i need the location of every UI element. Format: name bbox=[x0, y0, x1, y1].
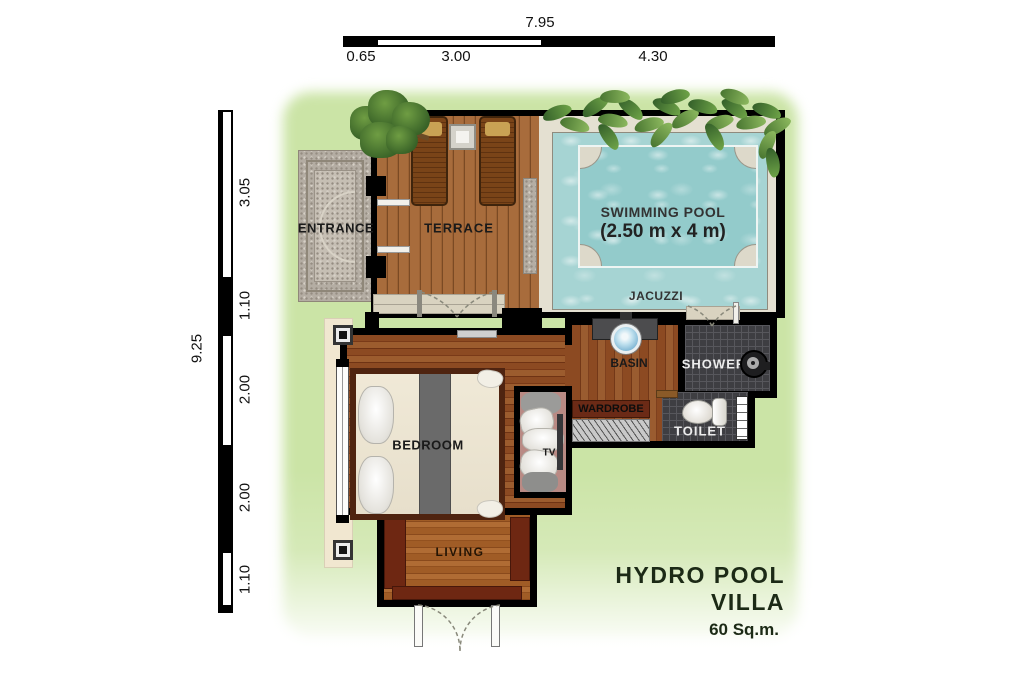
wardrobe-rail-hatch bbox=[572, 419, 650, 442]
wall-stub bbox=[365, 312, 379, 334]
daybed-cushion bbox=[522, 472, 558, 492]
sofa bbox=[510, 517, 530, 581]
patio-post-core bbox=[339, 331, 347, 339]
bedroom-label: BEDROOM bbox=[392, 438, 463, 453]
plan-title: HYDRO POOL VILLA bbox=[555, 562, 785, 616]
dim-top-seg-2: 3.00 bbox=[416, 48, 496, 65]
wardrobe-label: WARDROBE bbox=[578, 403, 643, 415]
scale-segment-black bbox=[223, 605, 231, 611]
shower-head-ring bbox=[747, 357, 759, 369]
faucet-icon bbox=[620, 312, 632, 320]
scale-segment-black bbox=[223, 277, 231, 336]
plan-title-block: HYDRO POOL VILLA 60 Sq.m. bbox=[555, 562, 785, 640]
water-feature-wall bbox=[523, 178, 537, 274]
terrace-label: TERRACE bbox=[424, 221, 494, 236]
shower-label: SHOWER bbox=[682, 357, 747, 372]
scale-segment-black bbox=[345, 40, 378, 45]
plan-area: 60 Sq.m. bbox=[555, 620, 785, 640]
living-label: LIVING bbox=[435, 545, 484, 559]
door-leaf bbox=[377, 246, 410, 253]
sliding-door bbox=[457, 330, 497, 338]
lounger-headrest bbox=[485, 122, 510, 136]
dim-left-seg-4: 2.00 bbox=[237, 458, 254, 538]
jacuzzi-label: JACUZZI bbox=[629, 289, 683, 303]
entrance-label: ENTRANCE bbox=[298, 221, 374, 236]
toilet-bowl-icon bbox=[682, 400, 714, 424]
foliage-row bbox=[540, 88, 780, 168]
dim-left-seg-5: 1.10 bbox=[237, 540, 254, 620]
terrace-door-swing-arcs bbox=[415, 290, 499, 320]
dim-top-seg-3: 4.30 bbox=[613, 48, 693, 65]
window-mullion bbox=[342, 361, 343, 521]
scale-segment-black bbox=[541, 40, 773, 45]
patio-post bbox=[333, 325, 353, 345]
wall-stub bbox=[502, 308, 542, 334]
tv-label: TV bbox=[543, 448, 556, 459]
pool-door-swing-arcs bbox=[684, 304, 740, 330]
sun-lounger bbox=[479, 116, 516, 206]
pillow bbox=[358, 456, 394, 514]
toilet-label: TOILET bbox=[674, 424, 726, 439]
left-scale-bar bbox=[218, 110, 233, 613]
tree bbox=[350, 90, 445, 175]
patio-post-core bbox=[339, 546, 347, 554]
entry-door-swing-arcs bbox=[410, 603, 508, 655]
dim-top-seg-1: 0.65 bbox=[321, 48, 401, 65]
basin-label: BASIN bbox=[610, 356, 647, 370]
toilet-tank-icon bbox=[712, 398, 727, 426]
bedroom-window bbox=[336, 360, 349, 522]
window-end bbox=[336, 359, 349, 367]
shower-head-notch bbox=[761, 362, 770, 370]
bedroom-hall-opening bbox=[565, 345, 572, 387]
top-scale-bar bbox=[343, 36, 775, 47]
dim-top-total: 7.95 bbox=[500, 14, 580, 31]
window-end bbox=[336, 515, 349, 523]
patio-post-ring bbox=[336, 543, 350, 557]
basin-icon bbox=[611, 324, 641, 354]
dim-left-total: 9.25 bbox=[189, 309, 206, 389]
floor-plan-canvas: 7.95 0.65 3.00 4.30 9.25 3.05 1.10 2.00 … bbox=[0, 0, 1024, 683]
sofa bbox=[384, 517, 406, 589]
pillow bbox=[358, 386, 394, 444]
pool-size-label: (2.50 m x 4 m) bbox=[600, 221, 726, 243]
door-leaf bbox=[377, 199, 410, 206]
door-post bbox=[366, 176, 386, 196]
door-post bbox=[366, 256, 386, 278]
tv-screen bbox=[557, 414, 563, 470]
pool-label: SWIMMING POOL bbox=[601, 204, 726, 220]
shower-head-icon bbox=[740, 350, 768, 378]
dim-left-seg-3: 2.00 bbox=[237, 350, 254, 430]
threshold bbox=[656, 390, 678, 398]
tv-nook bbox=[514, 386, 572, 498]
dim-left-seg-2: 1.10 bbox=[237, 266, 254, 346]
sofa-bench bbox=[392, 586, 522, 600]
patio-post-ring bbox=[336, 328, 350, 342]
patio-post bbox=[333, 540, 353, 560]
table-top bbox=[456, 131, 469, 143]
scale-segment-black bbox=[223, 445, 231, 553]
dim-left-seg-1: 3.05 bbox=[237, 153, 254, 233]
terrace-side-table bbox=[449, 124, 476, 150]
louver-window bbox=[736, 396, 748, 440]
